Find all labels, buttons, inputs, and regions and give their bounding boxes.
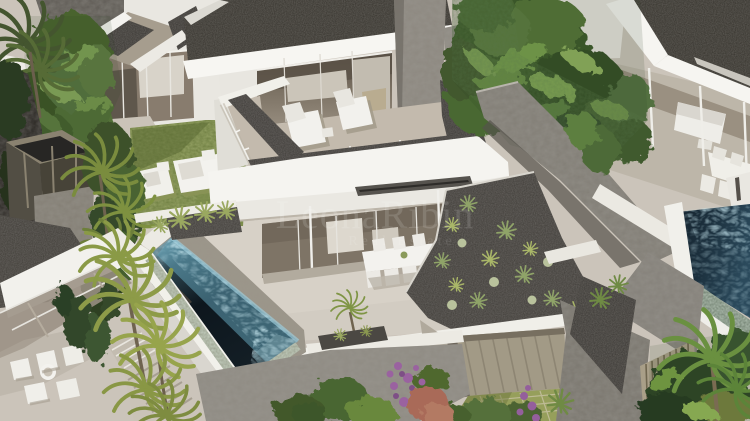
svg-text:Real Estate: Real Estate bbox=[348, 234, 455, 249]
svg-text:LeonaRibin: LeonaRibin bbox=[276, 192, 475, 237]
